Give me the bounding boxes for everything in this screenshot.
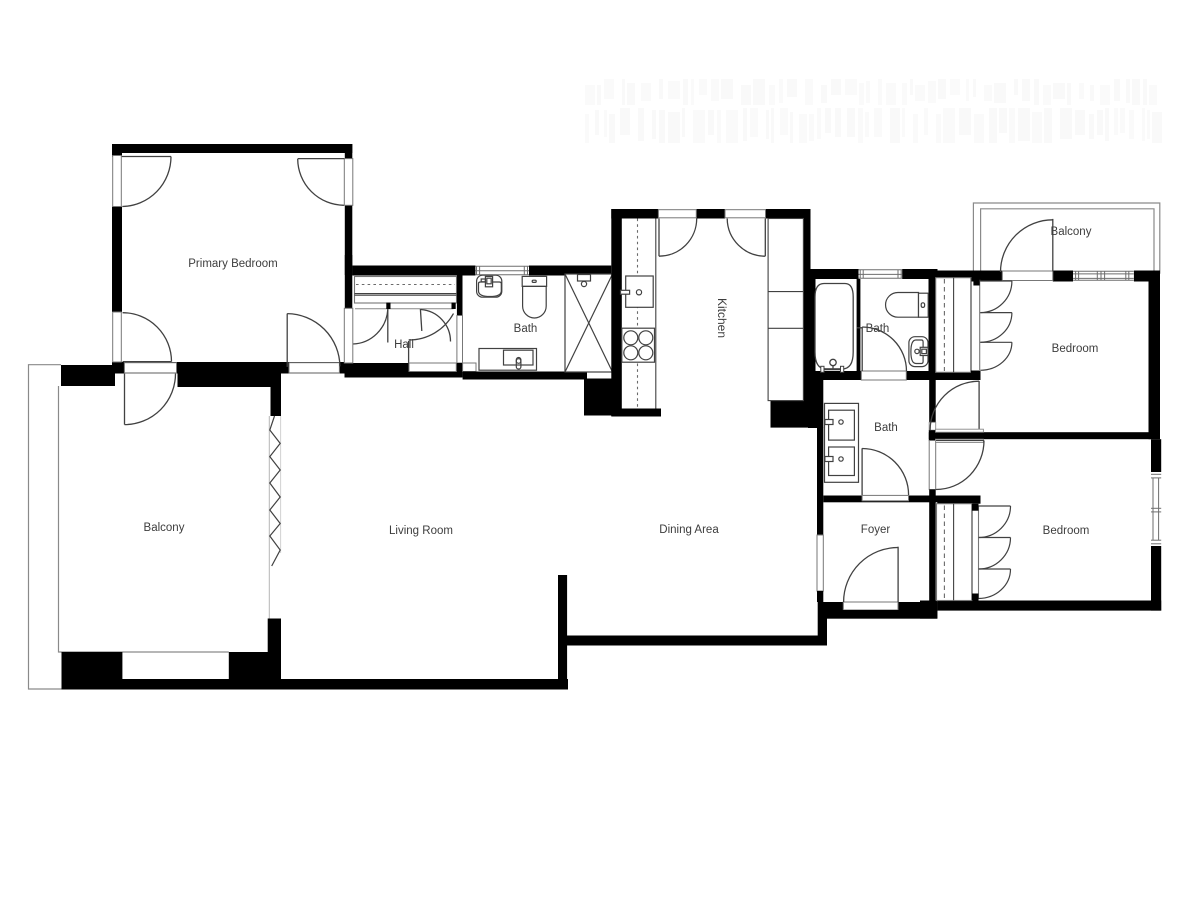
svg-text:Foyer: Foyer — [861, 524, 891, 536]
svg-text:Balcony: Balcony — [144, 522, 185, 534]
svg-text:Balcony: Balcony — [1051, 226, 1092, 238]
svg-text:Bedroom: Bedroom — [1043, 525, 1090, 537]
svg-text:Bath: Bath — [874, 422, 898, 434]
svg-text:Bedroom: Bedroom — [1052, 343, 1099, 355]
svg-text:Kitchen: Kitchen — [715, 298, 729, 338]
svg-text:Hall: Hall — [394, 339, 414, 351]
svg-text:Bath: Bath — [514, 323, 538, 335]
svg-text:Dining Area: Dining Area — [659, 524, 719, 536]
svg-text:Primary Bedroom: Primary Bedroom — [188, 258, 277, 270]
svg-text:Living Room: Living Room — [389, 525, 453, 537]
